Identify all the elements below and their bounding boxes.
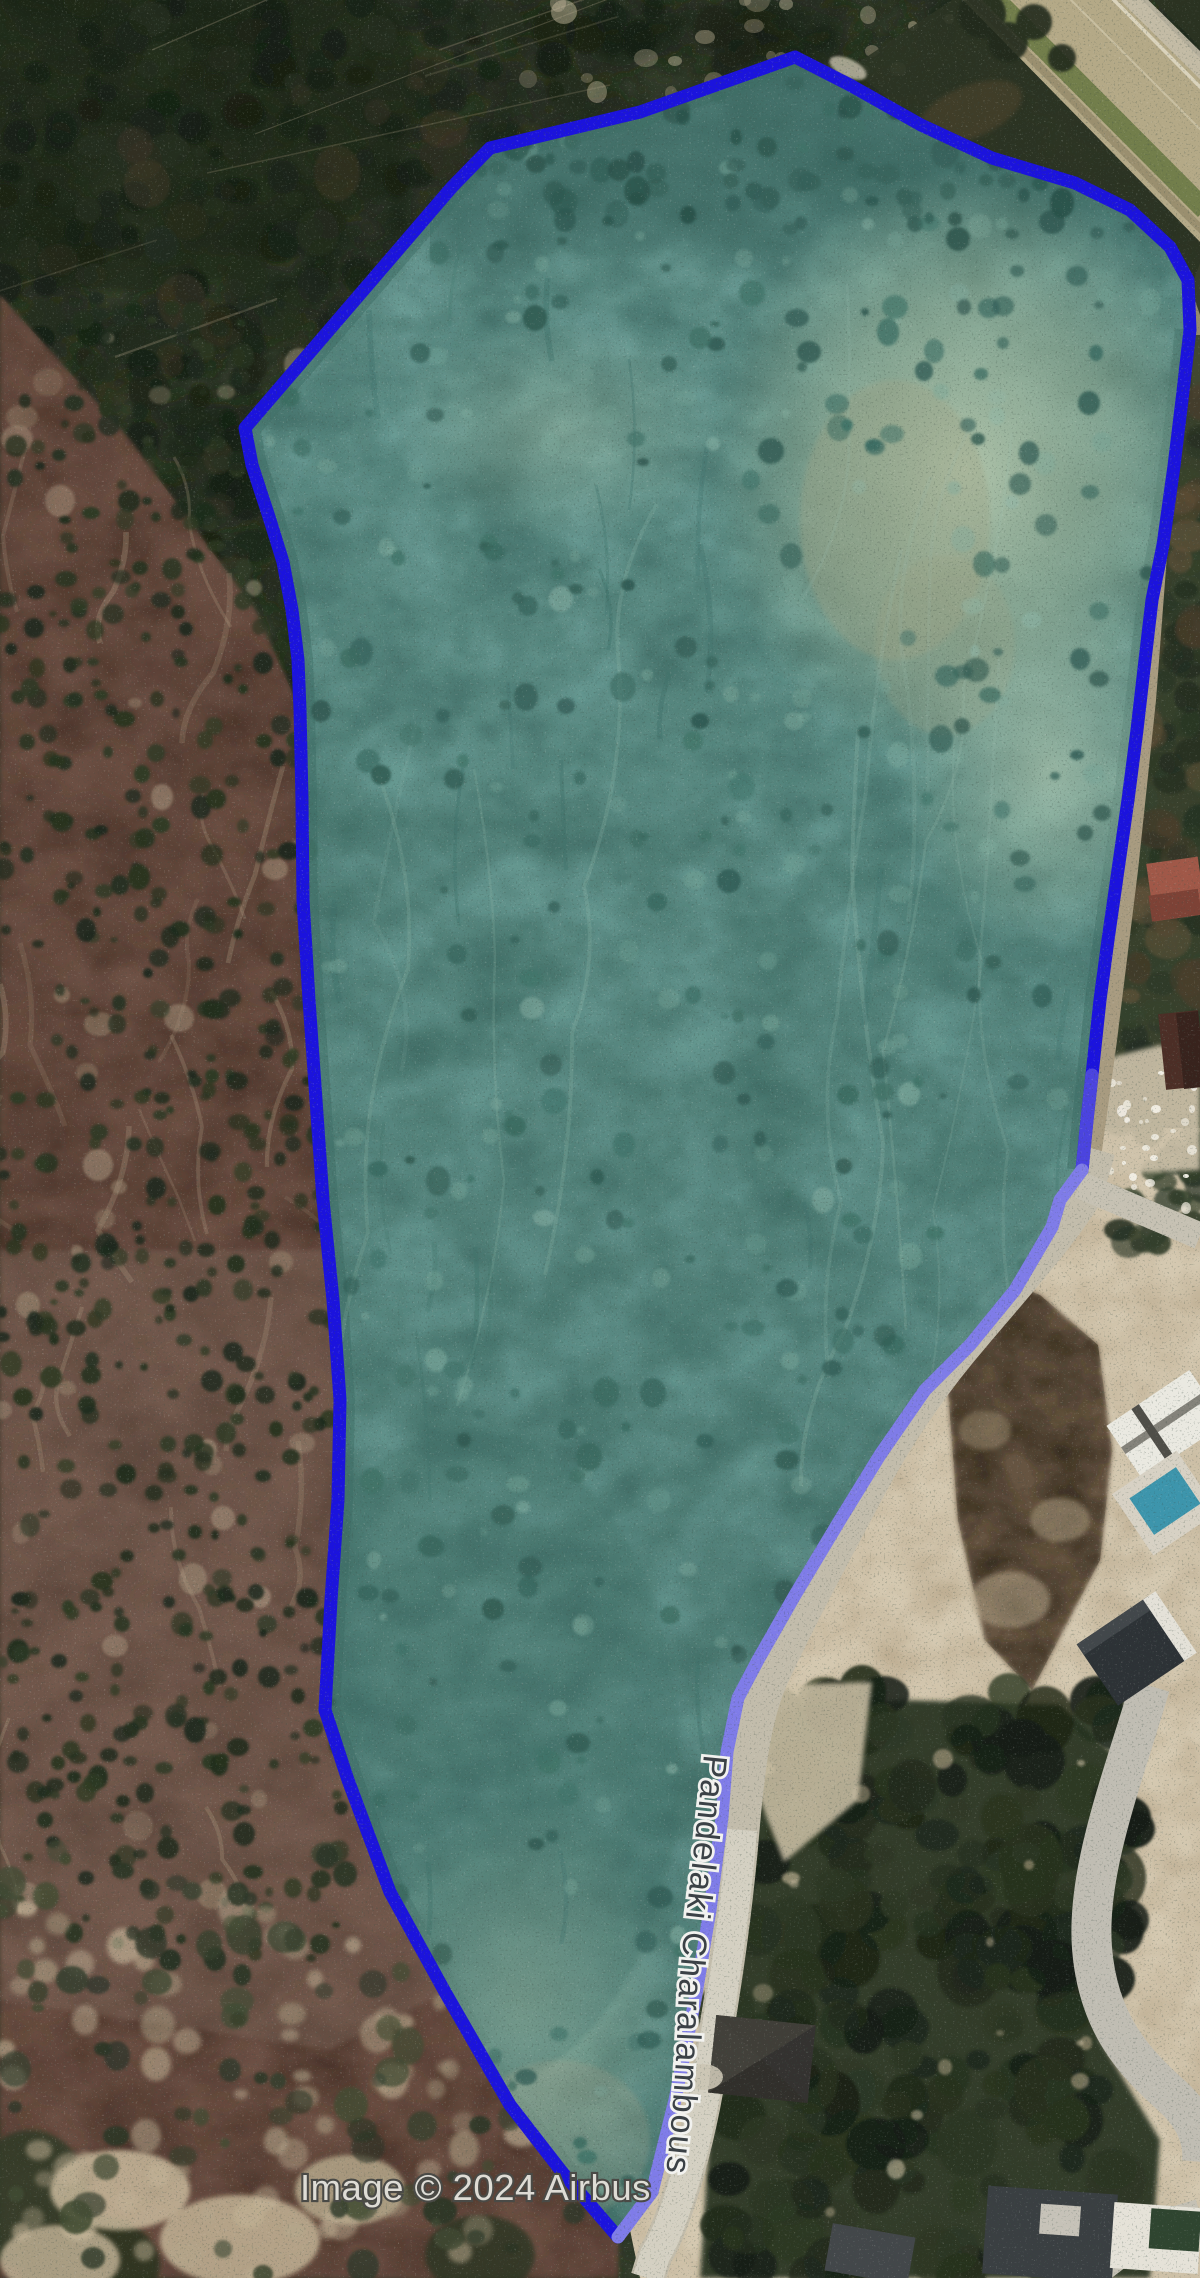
svg-text:Image © 2024 Airbus: Image © 2024 Airbus xyxy=(300,2167,651,2208)
